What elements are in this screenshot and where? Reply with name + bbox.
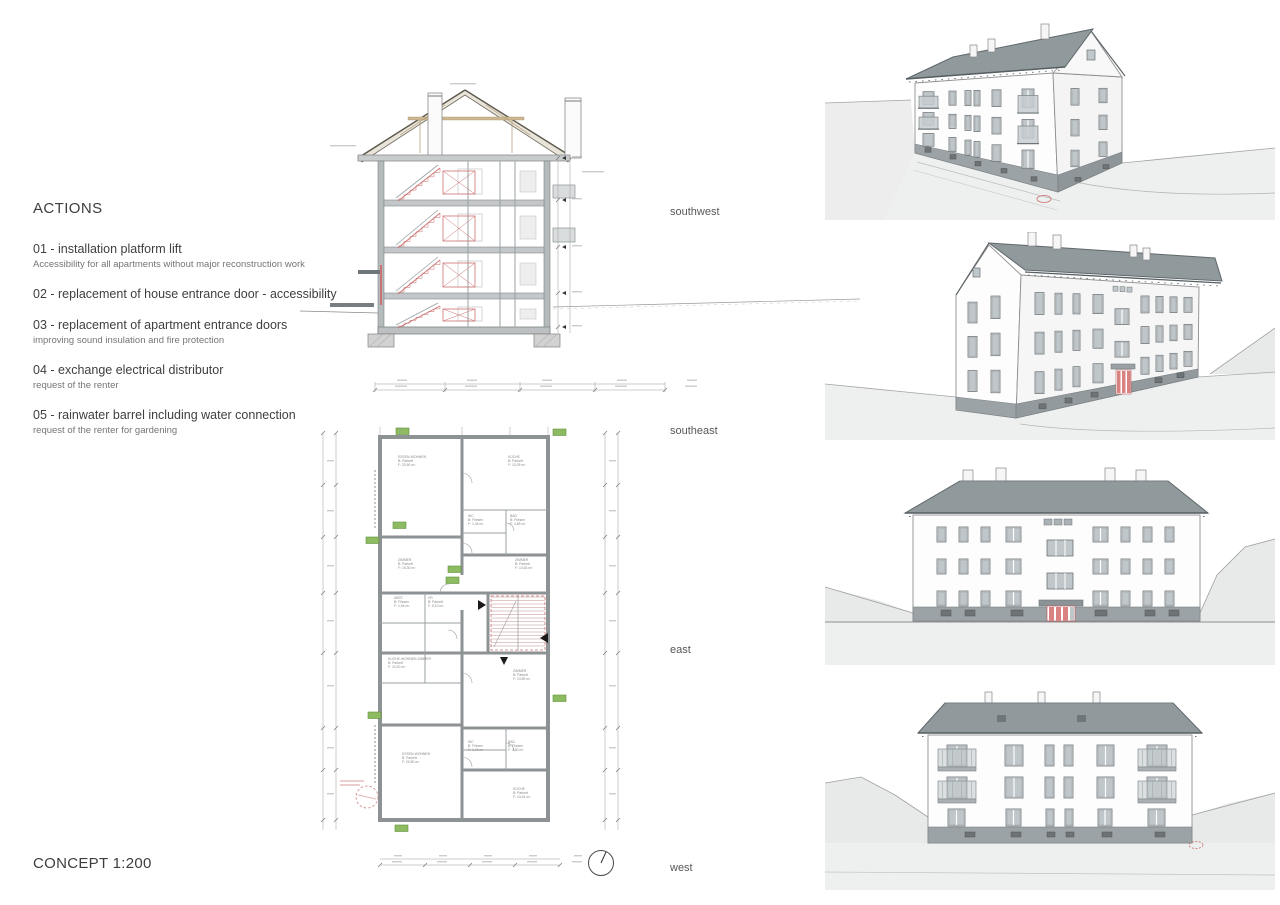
- red-entrance-door: [1047, 606, 1075, 621]
- section-roof: [358, 90, 572, 162]
- presentation-sheet: ACTIONS 01 - installation platform liftA…: [0, 0, 1280, 905]
- building-section-drawing: [300, 75, 865, 405]
- north-arrow-compass: [585, 847, 617, 879]
- section-balcony: [553, 185, 575, 198]
- view-west-elevation: [825, 675, 1275, 890]
- section-balcony: [553, 228, 575, 242]
- view-southeast-perspective: [825, 232, 1275, 440]
- red-entrance-door: [1116, 370, 1131, 394]
- floor-plan-drawing: ESSEN-WOHNENB: ParkettF: 20,50 m²KÜCHEB:…: [310, 425, 630, 885]
- view-label-east: east: [670, 644, 691, 656]
- view-southwest-perspective: [825, 12, 1275, 220]
- view-label-west: west: [670, 862, 693, 874]
- action-title: 05 - rainwater barrel including water co…: [33, 408, 353, 423]
- view-label-southeast: southeast: [670, 425, 718, 437]
- action-item-5: 05 - rainwater barrel including water co…: [33, 408, 353, 437]
- concept-scale-label: CONCEPT 1:200: [33, 855, 152, 872]
- action-subtitle: request of the renter for gardening: [33, 425, 353, 437]
- view-east-elevation: [825, 455, 1275, 665]
